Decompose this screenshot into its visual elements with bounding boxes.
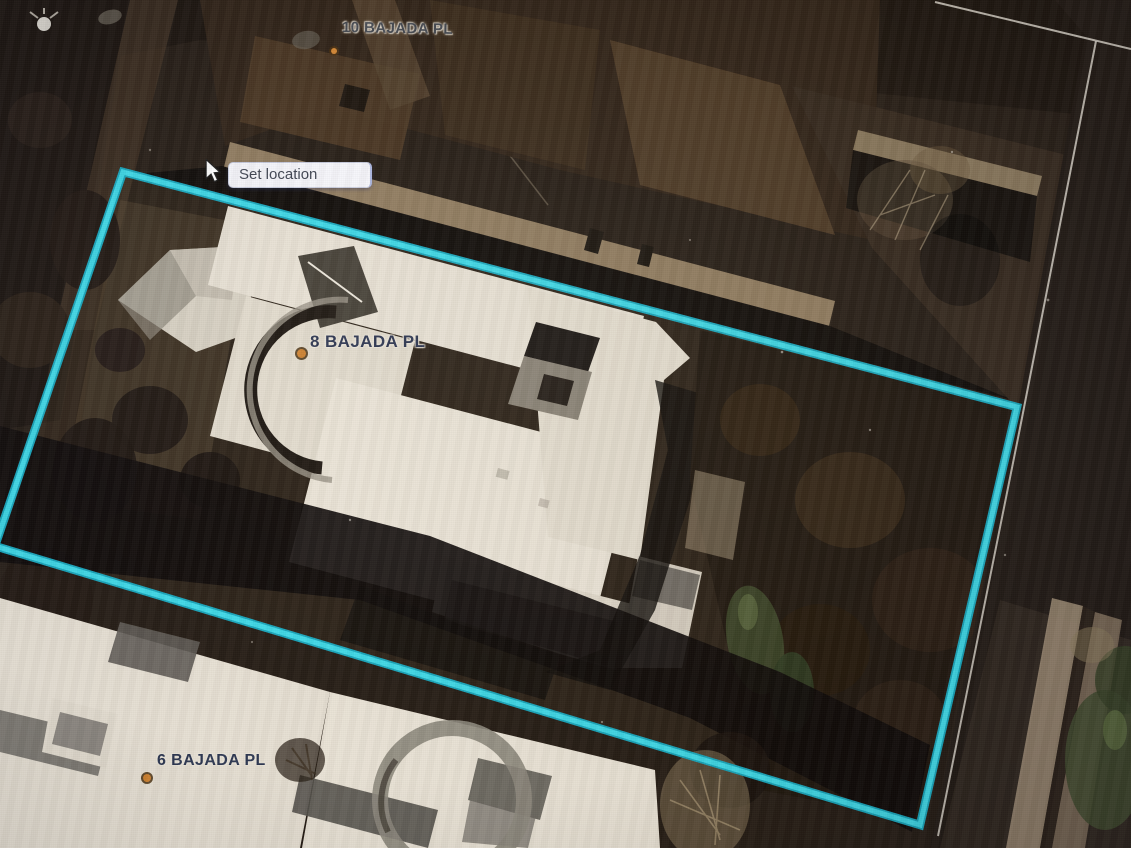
set-location-tooltip: Set location — [228, 162, 372, 188]
address-marker-10-bajada — [331, 48, 337, 54]
address-marker-6-bajada — [143, 774, 151, 782]
address-label-8-bajada: 8 BAJADA PL — [310, 332, 425, 352]
set-location-tooltip-label: Set location — [239, 166, 317, 183]
address-marker-8-bajada — [297, 349, 306, 358]
address-label-6-bajada: 6 BAJADA PL — [157, 752, 266, 770]
aerial-map[interactable] — [0, 0, 1131, 848]
map-viewport[interactable]: 10 BAJADA PL 8 BAJADA PL 6 BAJADA PL Set… — [0, 0, 1131, 848]
address-label-10-bajada: 10 BAJADA PL — [342, 19, 453, 38]
mouse-cursor — [204, 159, 222, 183]
